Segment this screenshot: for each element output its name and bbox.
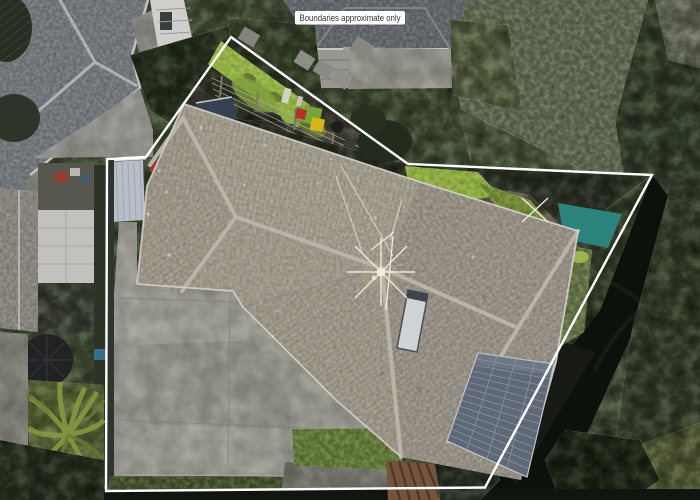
svg-text:Boundaries approximate only: Boundaries approximate only: [300, 13, 401, 23]
